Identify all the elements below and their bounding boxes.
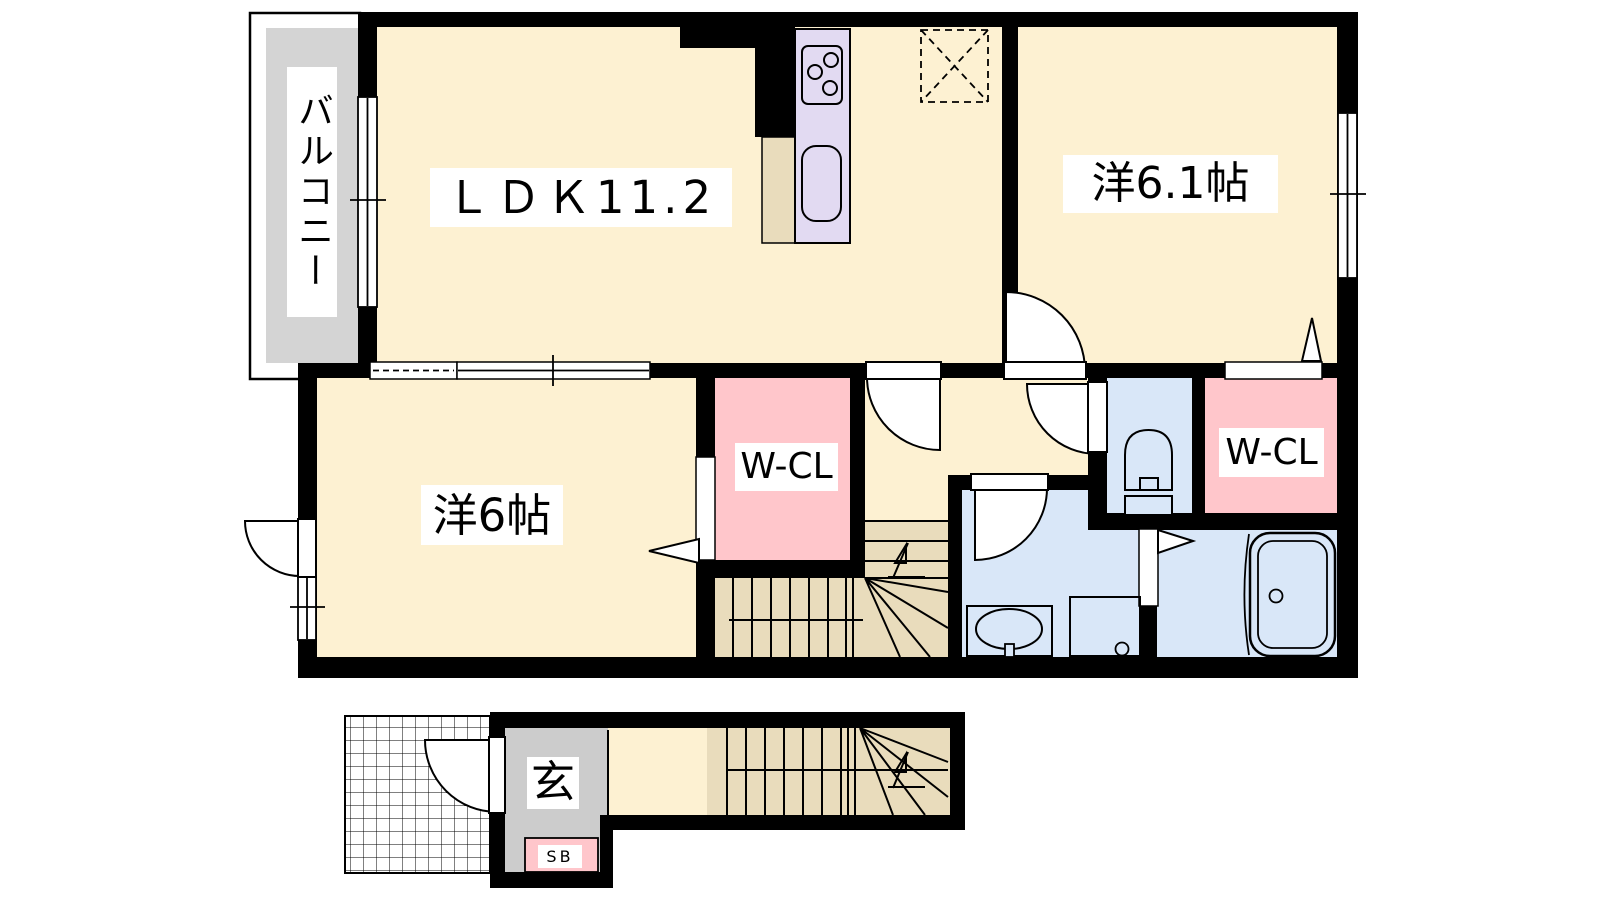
bathroom-door-opening xyxy=(1139,529,1158,606)
western-room-6-casement-window xyxy=(245,519,316,577)
toilet-icon xyxy=(1125,430,1172,515)
room-label-ldk: ＬＤＫ11.2 xyxy=(430,168,732,227)
floor-plan-page: バルコニー ＬＤＫ11.2 洋6.1帖 洋6帖 W-CL W-CL 玄 SB xyxy=(0,0,1600,900)
ldk-partition-opening xyxy=(370,362,457,379)
room-label-balcony: バルコニー xyxy=(287,67,337,317)
room-label-walk-in-closet-2: W-CL xyxy=(1219,428,1324,477)
hallway-1f-floor xyxy=(608,728,707,815)
room-label-western-6-1: 洋6.1帖 xyxy=(1063,155,1278,213)
room-label-walk-in-closet-1: W-CL xyxy=(735,443,838,491)
stairs-2f-floor xyxy=(715,578,948,657)
stair-landing-2f xyxy=(865,490,948,520)
room-label-entrance: 玄 xyxy=(527,757,579,809)
room-label-shoe-box: SB xyxy=(538,845,582,868)
room-label-western-6: 洋6帖 xyxy=(421,485,563,545)
stairs-1f-floor xyxy=(707,728,950,815)
kitchen-counter xyxy=(762,137,795,243)
walk-in-closet-2-opening xyxy=(1225,362,1322,379)
